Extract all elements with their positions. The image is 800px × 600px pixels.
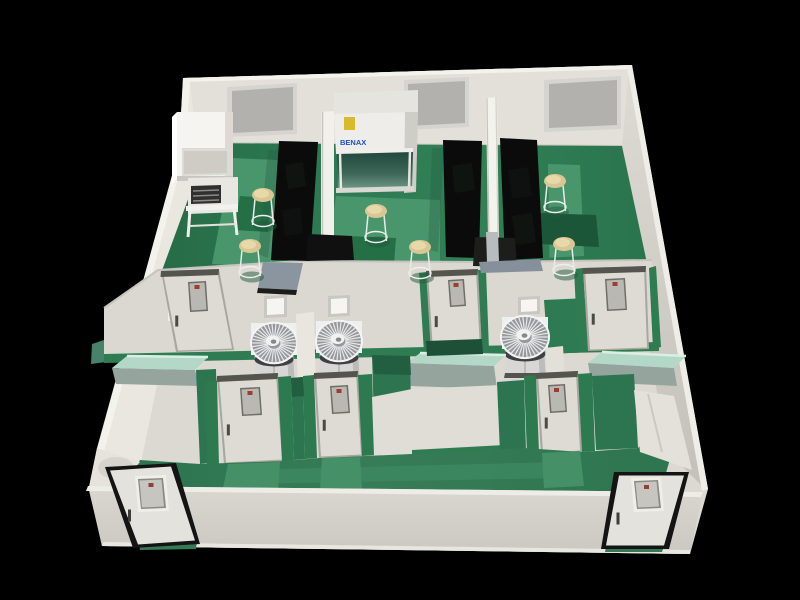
svg-text:BENAX: BENAX bbox=[340, 138, 366, 147]
